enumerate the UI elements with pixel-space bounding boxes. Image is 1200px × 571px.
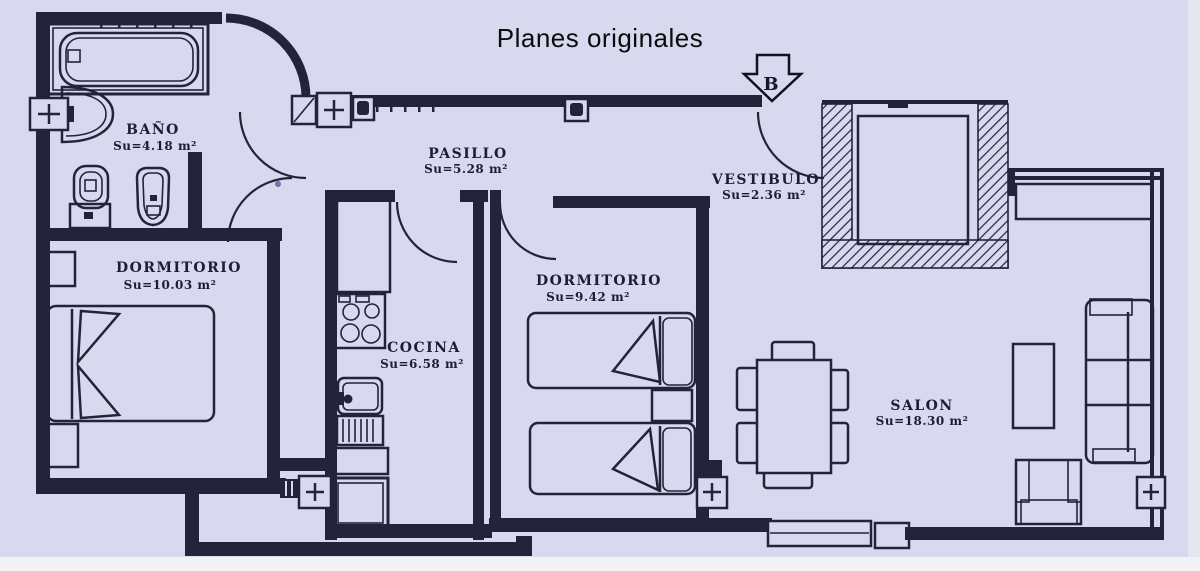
room-name-dormitorio1: DORMITORIO [116,260,242,276]
radiator [1137,477,1165,508]
room-name-vestibulo: VESTIBULO [711,172,820,188]
room-name-bano: BAÑO [126,119,180,138]
wall-meter-box [565,99,588,121]
section-arrow-label: B [763,74,778,95]
paper-bottom-edge [0,557,1200,571]
page-title: Planes originales [497,23,704,53]
room-name-cocina: COCINA [387,340,461,356]
scan-speck [275,181,281,187]
room-name-pasillo: PASILLO [428,146,507,162]
radiator [317,93,351,127]
room-area-cocina: Su=6.58 m² [380,357,464,371]
wall-meter-box [353,97,374,120]
room-area-vestibulo: Su=2.36 m² [722,188,806,202]
dining-table [757,360,831,473]
room-area-bano: Su=4.18 m² [113,139,197,153]
room-area-salon: Su=18.30 m² [876,414,969,428]
room-area-dormitorio2: Su=9.42 m² [546,290,630,304]
room-area-pasillo: Su=5.28 m² [424,162,508,176]
floor-plan-sheet: B Planes originales BAÑO Su=4.18 m² PASI… [0,0,1200,571]
room-area-dormitorio1: Su=10.03 m² [124,278,217,292]
room-name-dormitorio2: DORMITORIO [536,273,662,289]
paper-right-edge [1188,0,1200,571]
room-name-salon: SALON [890,398,953,414]
door-box [292,96,316,124]
radiator [30,98,68,130]
floor-plan-drawing: B Planes originales BAÑO Su=4.18 m² PASI… [0,0,1200,571]
